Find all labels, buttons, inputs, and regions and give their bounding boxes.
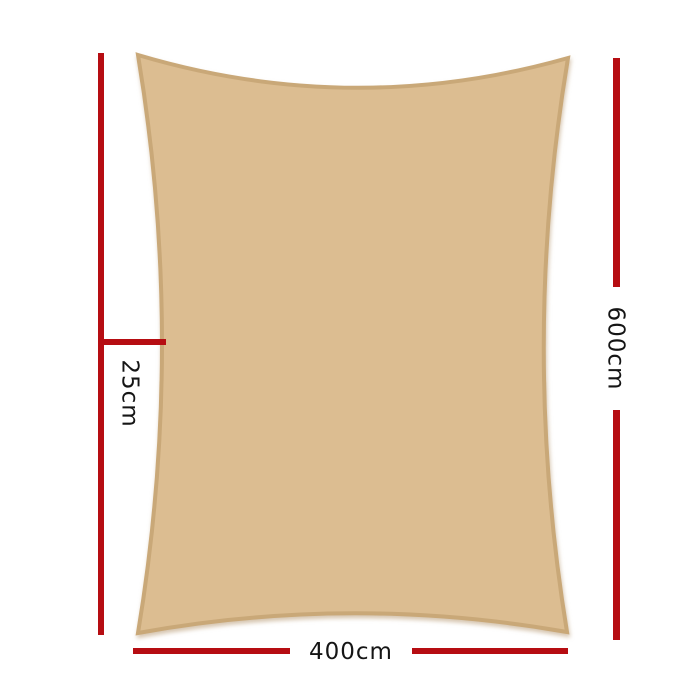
height-label: 600cm <box>603 299 628 399</box>
dimension-diagram: 25cm 600cm 400cm <box>0 0 700 700</box>
width-label: 400cm <box>271 640 431 665</box>
width-dimension-line-right <box>412 648 568 654</box>
shade-sail-shape <box>138 55 568 633</box>
height-dimension-line-upper <box>613 58 620 287</box>
width-dimension-line-left <box>133 648 290 654</box>
side-offset-dimension-tick <box>98 339 166 345</box>
height-dimension-line-lower <box>613 410 620 640</box>
side-offset-label: 25cm <box>117 349 142 439</box>
shade-sail-illustration <box>0 0 700 700</box>
